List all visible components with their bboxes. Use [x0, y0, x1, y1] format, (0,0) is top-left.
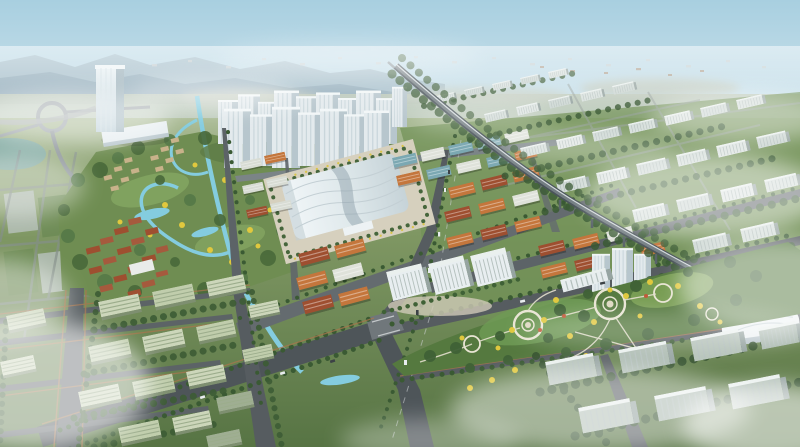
aerial-rendering: Aerial bird's-eye rendering of a planned…: [0, 0, 800, 447]
tower: [298, 112, 322, 166]
rendering-canvas: Aerial bird's-eye rendering of a planned…: [0, 0, 800, 447]
cloud: [520, 310, 800, 350]
cloud: [410, 104, 550, 132]
cloud: [130, 76, 290, 112]
cloud: [220, 41, 480, 75]
